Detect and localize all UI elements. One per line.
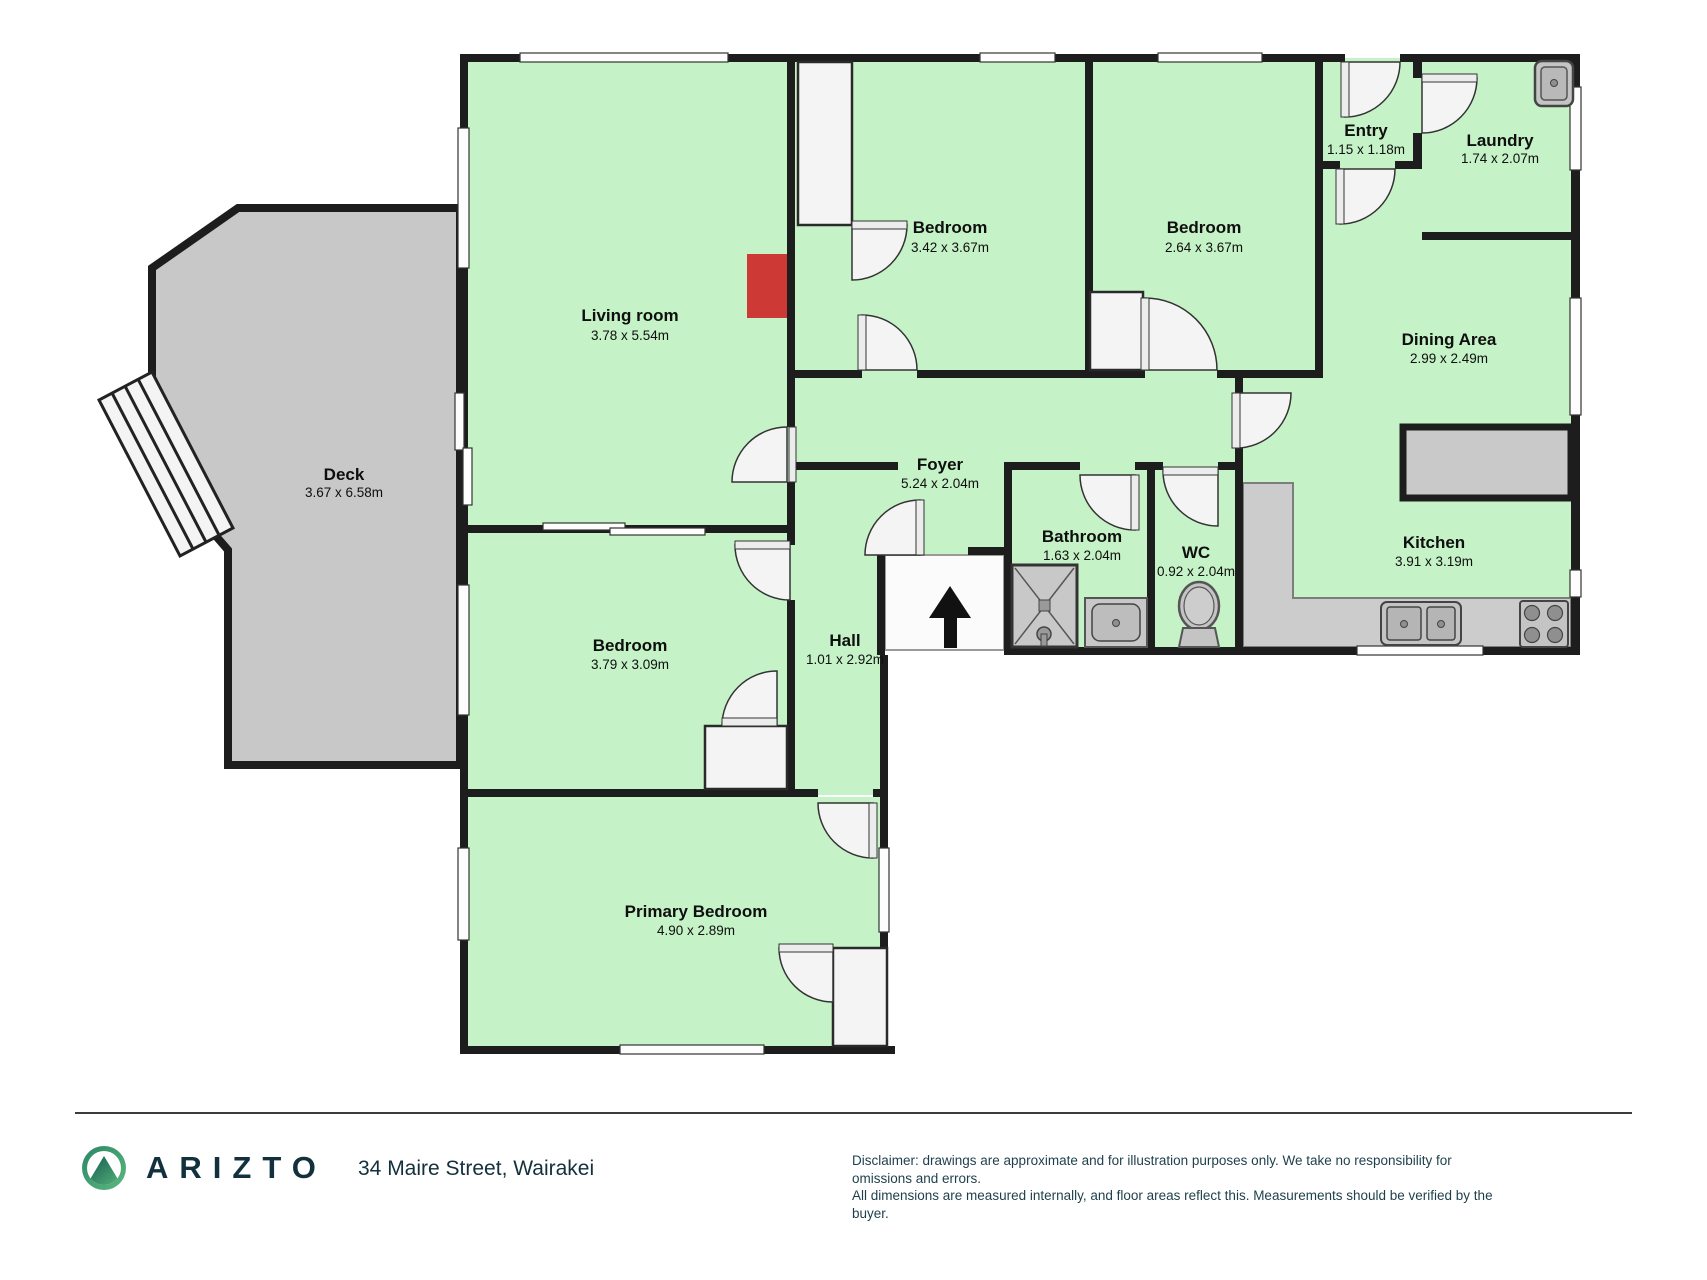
label-bedroom2: Bedroom 2.64 x 3.67m [1165,218,1243,255]
svg-text:Deck: Deck [324,465,365,484]
svg-text:WC: WC [1182,543,1210,562]
label-kitchen: Kitchen 3.91 x 3.19m [1395,533,1473,569]
svg-text:1.15 x 1.18m: 1.15 x 1.18m [1327,142,1405,157]
svg-text:2.99 x 2.49m: 2.99 x 2.49m [1410,351,1488,366]
label-dining-area: Dining Area 2.99 x 2.49m [1402,330,1497,366]
entrance-porch [885,555,1004,650]
svg-text:Bedroom: Bedroom [593,636,668,655]
svg-text:Bedroom: Bedroom [1167,218,1242,237]
svg-text:1.63 x 2.04m: 1.63 x 2.04m [1043,548,1121,563]
svg-text:3.78 x 5.54m: 3.78 x 5.54m [591,328,669,343]
shower-icon [1012,565,1077,647]
svg-text:0.92 x 2.04m: 0.92 x 2.04m [1157,564,1235,579]
label-bedroom1: Bedroom 3.42 x 3.67m [911,218,989,255]
floorplan-page: Living room 3.78 x 5.54m Bedroom 3.42 x … [0,0,1707,1280]
closet-bedroom3 [705,726,787,789]
svg-text:Laundry: Laundry [1466,131,1534,150]
svg-text:Bedroom: Bedroom [913,218,988,237]
svg-text:Dining Area: Dining Area [1402,330,1497,349]
label-bathroom: Bathroom 1.63 x 2.04m [1042,527,1122,563]
svg-text:2.64 x 3.67m: 2.64 x 3.67m [1165,240,1243,255]
closet-bedroom2 [1090,292,1143,370]
svg-text:1.01 x 2.92m: 1.01 x 2.92m [806,652,884,667]
label-living-room: Living room 3.78 x 5.54m [581,306,678,343]
toilet-icon [1179,582,1219,647]
closet-bedroom1 [798,62,852,225]
footer: ARIZTO 34 Maire Street, Wairakei Disclai… [0,1130,1707,1250]
laundry-tub-icon [1535,61,1573,106]
label-bedroom3: Bedroom 3.79 x 3.09m [591,636,669,672]
bathroom-sink-icon [1085,598,1147,647]
label-laundry: Laundry 1.74 x 2.07m [1461,131,1539,166]
svg-text:Primary Bedroom: Primary Bedroom [625,902,768,921]
svg-text:4.90 x 2.89m: 4.90 x 2.89m [657,923,735,938]
disclaimer-line-1: Disclaimer: drawings are approximate and… [852,1152,1502,1187]
deck-area [99,208,460,765]
disclaimer-line-2: All dimensions are measured internally, … [852,1187,1502,1222]
svg-text:Hall: Hall [829,631,860,650]
floorplan-drawing: Living room 3.78 x 5.54m Bedroom 3.42 x … [0,0,1707,1120]
svg-text:3.79 x 3.09m: 3.79 x 3.09m [591,657,669,672]
svg-text:1.74 x 2.07m: 1.74 x 2.07m [1461,151,1539,166]
brand-name: ARIZTO [146,1150,327,1186]
closet-primary [833,948,887,1046]
svg-text:Entry: Entry [1344,121,1388,140]
svg-text:Bathroom: Bathroom [1042,527,1122,546]
svg-text:5.24 x 2.04m: 5.24 x 2.04m [901,476,979,491]
svg-text:3.67 x 6.58m: 3.67 x 6.58m [305,485,383,500]
property-address: 34 Maire Street, Wairakei [358,1157,594,1181]
footer-divider [75,1112,1632,1114]
disclaimer-text: Disclaimer: drawings are approximate and… [852,1152,1502,1222]
svg-text:Foyer: Foyer [917,455,964,474]
room-fills [468,58,1580,1046]
svg-text:3.42 x 3.67m: 3.42 x 3.67m [911,240,989,255]
svg-text:3.91 x 3.19m: 3.91 x 3.19m [1395,554,1473,569]
arizto-logo-icon [80,1144,128,1192]
svg-text:Living room: Living room [581,306,678,325]
stove-icon [1520,601,1568,647]
kitchen-island [1403,427,1571,498]
kitchen-sink-icon [1381,602,1461,645]
svg-text:Kitchen: Kitchen [1403,533,1465,552]
